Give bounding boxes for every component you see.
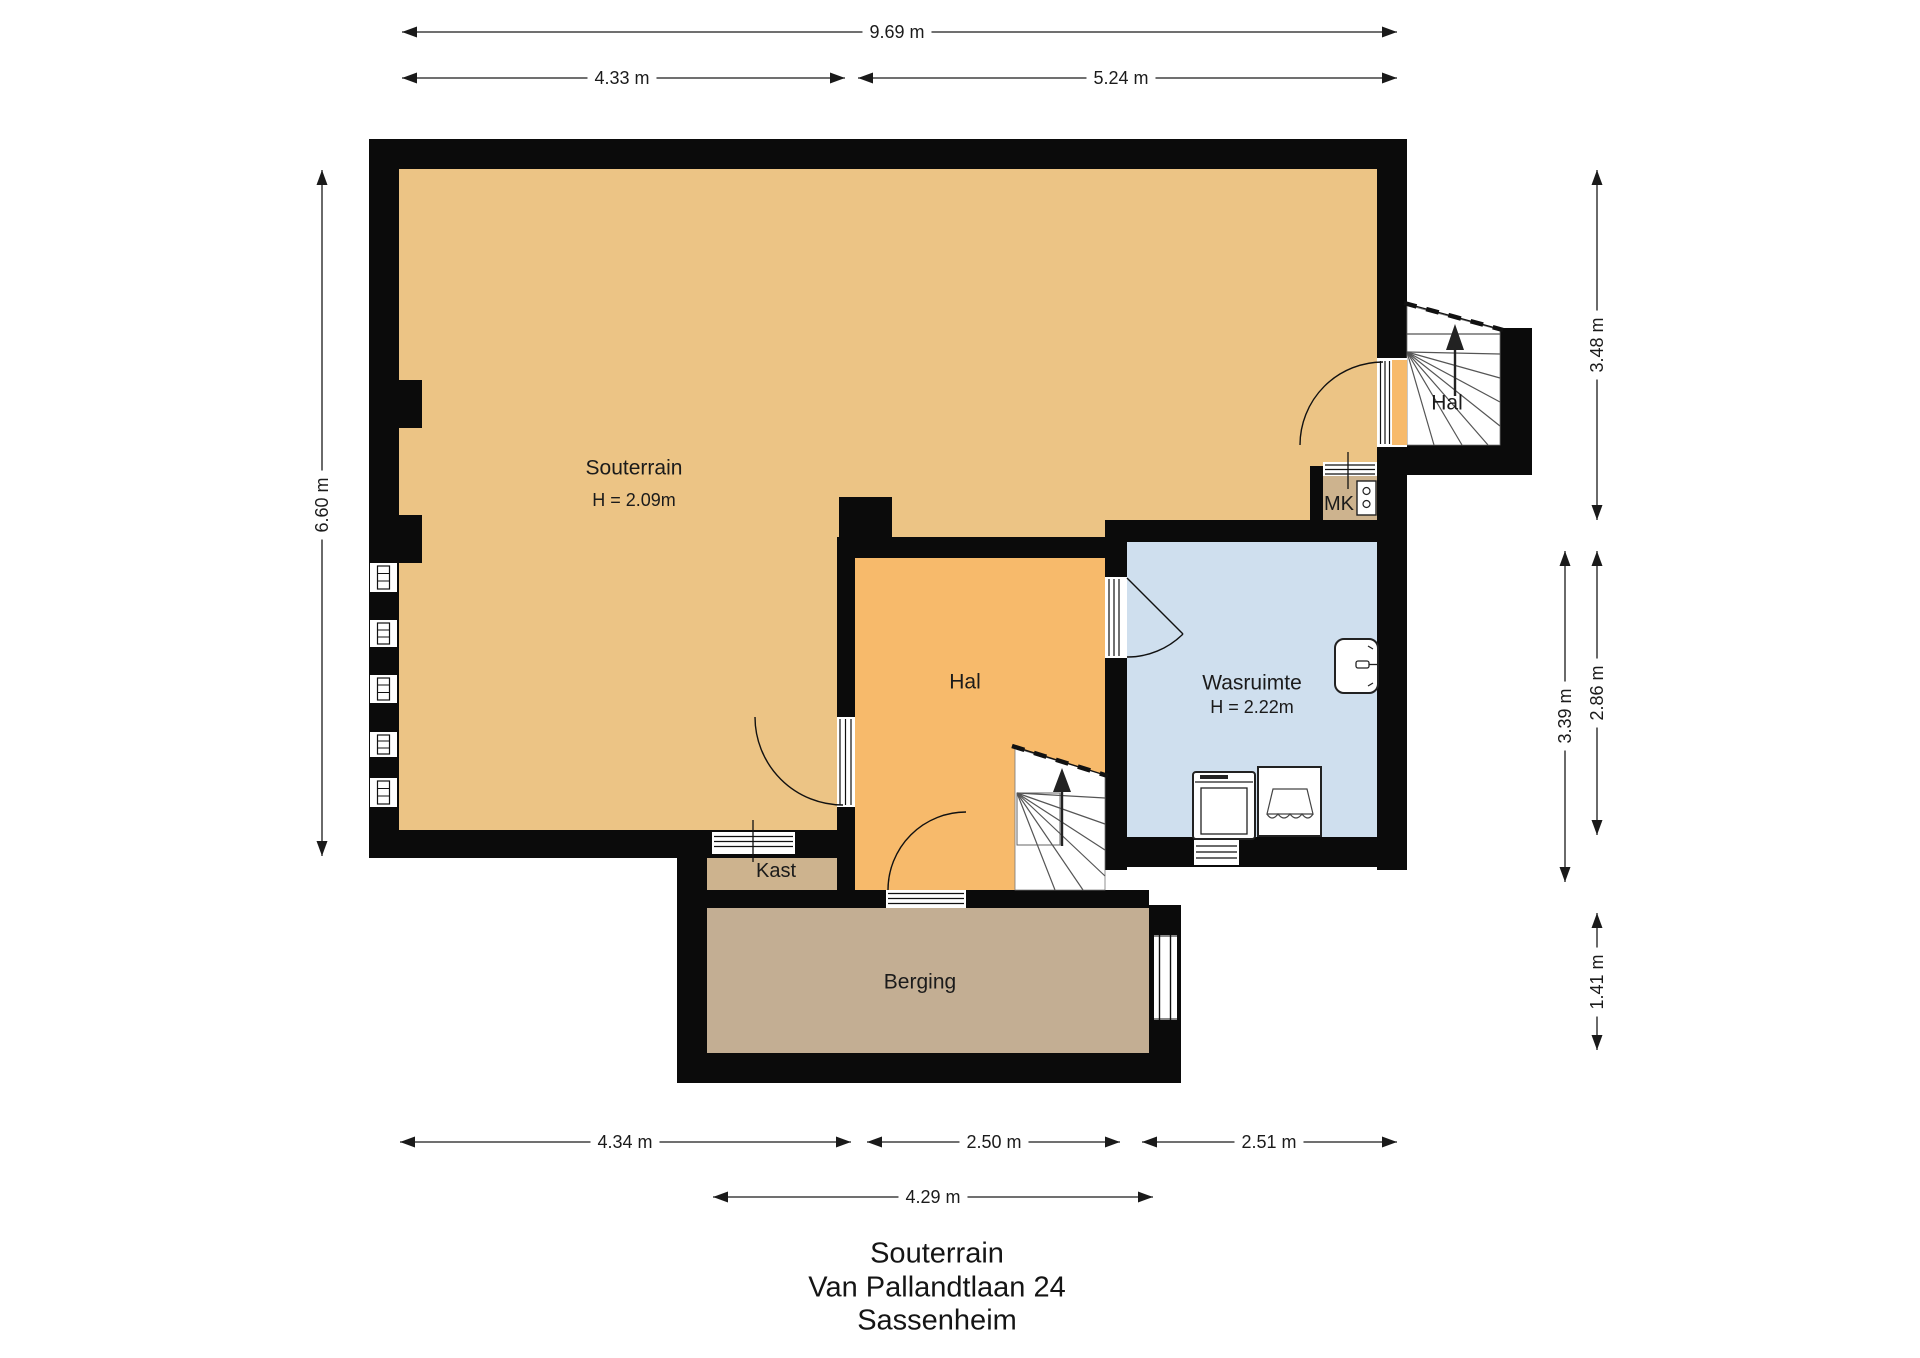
wall-hal-wasruimte [1105, 520, 1127, 870]
sink-icon [1335, 639, 1378, 693]
floorplan-canvas: 9.69 m 4.33 m 5.24 m 6.60 m 3.48 m 2.86 … [0, 0, 1920, 1358]
wall-wasruimte-top [1105, 520, 1407, 542]
dim-right-lower: 1.41 m [1587, 947, 1607, 1016]
vent-grille-icon [1194, 840, 1239, 865]
dim-top-right: 5.24 m [1086, 68, 1155, 88]
wall-hal-pier [839, 497, 892, 537]
dim-left-height: 6.60 m [312, 470, 332, 539]
room-label-mk: MK [1324, 494, 1354, 514]
wall-hal-top [837, 537, 1127, 558]
window-icon [370, 675, 397, 703]
window-icon [370, 732, 397, 757]
title-floor: Souterrain [870, 1240, 1004, 1269]
wall-berging-bottom [677, 1053, 1181, 1083]
room-label-wasruimte: Wasruimte [1202, 673, 1302, 694]
stairs-top-icon [1404, 303, 1503, 445]
room-label-hal: Hal [949, 672, 981, 693]
wall-mk-left [1310, 466, 1323, 542]
meter-panel-icon [1357, 481, 1376, 515]
wall-wasruimte-bottom [1127, 837, 1407, 867]
dim-right-inner: 3.39 m [1555, 681, 1575, 750]
dim-right-middle: 2.86 m [1587, 658, 1607, 727]
dim-bottom-right: 2.51 m [1234, 1132, 1303, 1152]
title-address: Van Pallandtlaan 24 [808, 1274, 1065, 1303]
room-label-souterrain: Souterrain [586, 458, 683, 479]
window-icon [370, 620, 397, 647]
window-berging-icon [1154, 935, 1177, 1020]
dim-bottom-left: 4.34 m [590, 1132, 659, 1152]
wall-pilaster-2 [399, 515, 422, 563]
wall-top [369, 139, 1407, 169]
wall-right [1377, 139, 1407, 870]
wall-stairblock-bottom [1407, 445, 1532, 475]
room-label-berging: Berging [884, 972, 956, 993]
wall-berging-left [677, 858, 707, 1083]
dim-top-total: 9.69 m [862, 22, 931, 42]
dim-top-left: 4.33 m [587, 68, 656, 88]
dim-bottom-middle: 2.50 m [959, 1132, 1028, 1152]
dim-bottom-inner: 4.29 m [898, 1187, 967, 1207]
window-icon [370, 563, 397, 592]
laundry-basket-icon [1258, 767, 1321, 836]
washing-machine-icon [1193, 772, 1255, 839]
room-height-souterrain: H = 2.09m [592, 491, 676, 509]
wall-pilaster-1 [399, 380, 422, 428]
dim-right-upper: 3.48 m [1587, 310, 1607, 379]
room-label-kast: Kast [756, 861, 796, 881]
room-height-wasruimte: H = 2.22m [1210, 698, 1294, 716]
title-city: Sassenheim [857, 1307, 1017, 1336]
window-icon [370, 778, 397, 807]
room-label-hal-top: Hal [1431, 393, 1463, 414]
